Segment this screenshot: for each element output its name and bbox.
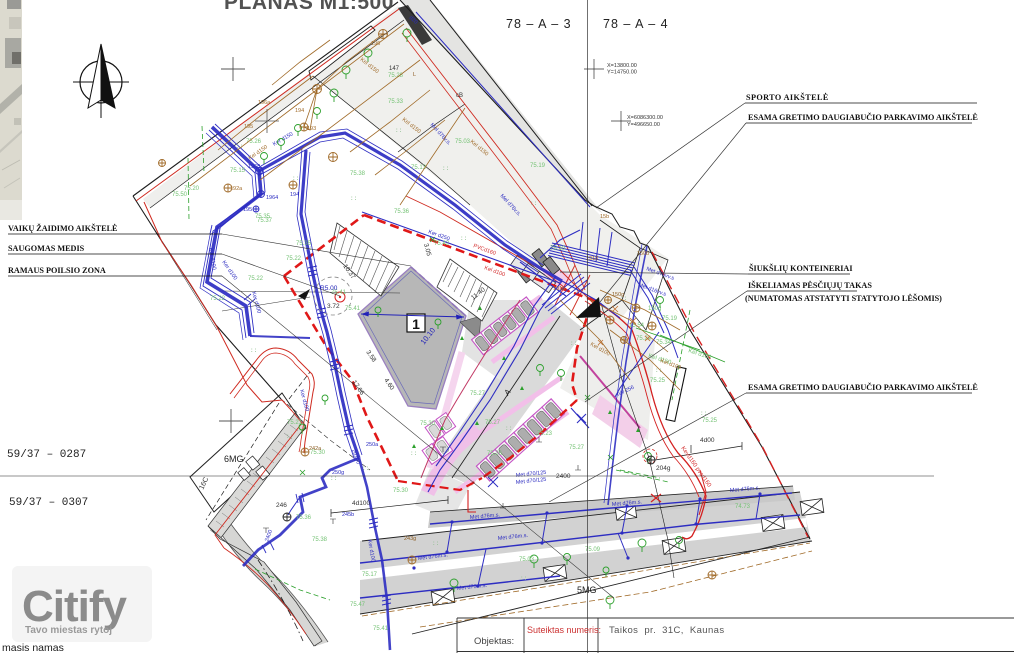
svg-text:75.25: 75.25 <box>702 418 718 424</box>
svg-text:5MG: 5MG <box>577 585 597 595</box>
svg-text:1968: 1968 <box>248 164 260 170</box>
svg-text:::: :: <box>460 235 467 242</box>
svg-text:75.38: 75.38 <box>350 171 366 177</box>
svg-text:::: :: <box>520 575 527 582</box>
svg-text:147: 147 <box>389 66 400 72</box>
svg-text:196a: 196a <box>258 100 271 106</box>
svg-text:::: :: <box>362 465 369 472</box>
svg-text:150g: 150g <box>612 292 624 298</box>
svg-text:15b: 15b <box>600 214 609 220</box>
svg-text:75.03: 75.03 <box>519 557 535 563</box>
svg-text:75.27: 75.27 <box>485 420 501 426</box>
svg-text:246: 246 <box>276 502 287 509</box>
svg-text:Objektas:: Objektas: <box>474 636 514 647</box>
svg-text:4d100: 4d100 <box>352 500 370 507</box>
svg-text:4d00: 4d00 <box>700 437 715 444</box>
svg-text:6MG: 6MG <box>224 454 244 464</box>
svg-text:::: :: <box>505 425 512 432</box>
svg-text:2400: 2400 <box>556 473 571 480</box>
svg-text:75.22: 75.22 <box>210 296 226 302</box>
svg-text:75.35: 75.35 <box>255 214 271 220</box>
svg-text:Taikos pr. 31C, Kaunas: Taikos pr. 31C, Kaunas <box>609 625 725 636</box>
svg-text:1: 1 <box>412 316 420 332</box>
svg-text:75.10: 75.10 <box>550 246 566 252</box>
svg-text:75.30: 75.30 <box>393 488 409 494</box>
svg-text:150g: 150g <box>648 306 661 312</box>
svg-text:R5.00: R5.00 <box>320 285 338 292</box>
svg-text:75.19: 75.19 <box>530 163 546 169</box>
svg-text:Citify: Citify <box>22 582 128 631</box>
svg-text:75.41: 75.41 <box>373 626 389 632</box>
svg-text:::: :: <box>350 195 357 202</box>
svg-text:75.38: 75.38 <box>312 537 328 543</box>
svg-text:ŠIUKŠLIŲ KONTEINERIAI: ŠIUKŠLIŲ KONTEINERIAI <box>749 263 853 273</box>
svg-text:::: :: <box>432 540 439 547</box>
svg-text:193: 193 <box>307 126 316 132</box>
svg-text:X=6086300.00: X=6086300.00 <box>627 115 663 121</box>
svg-text:X=13800.00: X=13800.00 <box>607 63 637 69</box>
svg-text:75.30: 75.30 <box>420 421 436 427</box>
svg-text:::: :: <box>286 433 293 440</box>
svg-text:::: :: <box>442 165 449 172</box>
svg-text:75.25: 75.25 <box>650 378 666 384</box>
svg-text:250a: 250a <box>366 442 379 448</box>
svg-text:192a: 192a <box>230 186 243 192</box>
svg-text:IŠKELIAMAS PĖSČIŲJŲ TAKAS: IŠKELIAMAS PĖSČIŲJŲ TAKAS <box>748 280 872 290</box>
svg-text:75.50: 75.50 <box>172 192 188 198</box>
svg-text:78 – A – 4: 78 – A – 4 <box>603 17 669 31</box>
svg-text:75.27: 75.27 <box>470 391 486 397</box>
svg-text:::: :: <box>395 127 402 134</box>
svg-text:75.41: 75.41 <box>345 306 361 312</box>
svg-text:::: :: <box>530 200 537 207</box>
svg-text:Tavo miestas rytoj: Tavo miestas rytoj <box>25 625 112 636</box>
svg-text:75.36: 75.36 <box>487 451 503 457</box>
svg-text:ESAMA GRETIMO DAUGIABUČIO PARK: ESAMA GRETIMO DAUGIABUČIO PARKAVIMO AIKŠ… <box>748 112 978 122</box>
svg-text:204g: 204g <box>656 465 671 472</box>
svg-text:75.27: 75.27 <box>569 445 585 451</box>
svg-text:195: 195 <box>243 207 252 213</box>
svg-text:59/37 – 0307: 59/37 – 0307 <box>9 497 88 509</box>
svg-text:Y=14750.00: Y=14750.00 <box>607 70 637 76</box>
svg-text:75.33: 75.33 <box>388 99 404 105</box>
svg-text:Y=496650.00: Y=496650.00 <box>627 122 660 128</box>
svg-text:75.36: 75.36 <box>296 515 312 521</box>
svg-text:75.42: 75.42 <box>434 241 450 247</box>
svg-text:75.22: 75.22 <box>286 256 302 262</box>
svg-text:::: :: <box>250 347 257 354</box>
svg-text:1964: 1964 <box>266 195 278 201</box>
svg-text:SAUGOMAS MEDIS: SAUGOMAS MEDIS <box>8 244 85 253</box>
svg-text:::: :: <box>700 410 707 417</box>
svg-text:ESAMA GRETIMO DAUGIABUČIO PARK: ESAMA GRETIMO DAUGIABUČIO PARKAVIMO AIKŠ… <box>748 382 978 392</box>
svg-text:SPORTO AIKŠTELĖ: SPORTO AIKŠTELĖ <box>746 92 829 102</box>
svg-text:(NUMATOMAS ATSTATYTI STATYTOJO: (NUMATOMAS ATSTATYTI STATYTOJO LĖŠOMIS) <box>745 293 942 303</box>
svg-text:75.22: 75.22 <box>248 276 264 282</box>
svg-text:L: L <box>413 72 416 78</box>
svg-text:75.17: 75.17 <box>362 572 378 578</box>
svg-text:75.34: 75.34 <box>656 340 672 346</box>
svg-text:75.47: 75.47 <box>350 602 366 608</box>
svg-text:::: :: <box>570 340 577 347</box>
svg-text:194: 194 <box>295 108 304 114</box>
svg-text:75.36: 75.36 <box>394 209 410 215</box>
svg-text:191b: 191b <box>553 286 565 292</box>
svg-text:3.72: 3.72 <box>327 303 340 310</box>
svg-text:195: 195 <box>244 124 253 130</box>
svg-text:75.21: 75.21 <box>287 420 303 426</box>
svg-text:74.73: 74.73 <box>735 504 751 510</box>
svg-text:::: :: <box>410 450 417 457</box>
svg-text:194: 194 <box>290 192 299 198</box>
svg-text:245b: 245b <box>342 512 354 518</box>
svg-text:75.23: 75.23 <box>537 431 553 437</box>
svg-text:78 – A – 3: 78 – A – 3 <box>506 17 572 31</box>
svg-text:Suteiktas numeris:: Suteiktas numeris: <box>527 625 601 635</box>
svg-text:RAMAUS POILSIO ZONA: RAMAUS POILSIO ZONA <box>8 266 106 275</box>
svg-text:masis namas: masis namas <box>2 642 64 653</box>
svg-text:75.03: 75.03 <box>455 139 471 145</box>
svg-text:196: 196 <box>371 41 380 47</box>
svg-text:59/37 – 0287: 59/37 – 0287 <box>7 449 86 461</box>
svg-text:75.15: 75.15 <box>230 168 246 174</box>
svg-text:VAIKŲ ŽAIDIMO AIKŠTELĖ: VAIKŲ ŽAIDIMO AIKŠTELĖ <box>8 223 118 233</box>
svg-text:cB: cB <box>456 93 463 99</box>
svg-text:243g: 243g <box>404 536 416 542</box>
svg-text:PLANAS M1:500: PLANAS M1:500 <box>224 0 394 14</box>
svg-text:242a: 242a <box>309 446 322 452</box>
